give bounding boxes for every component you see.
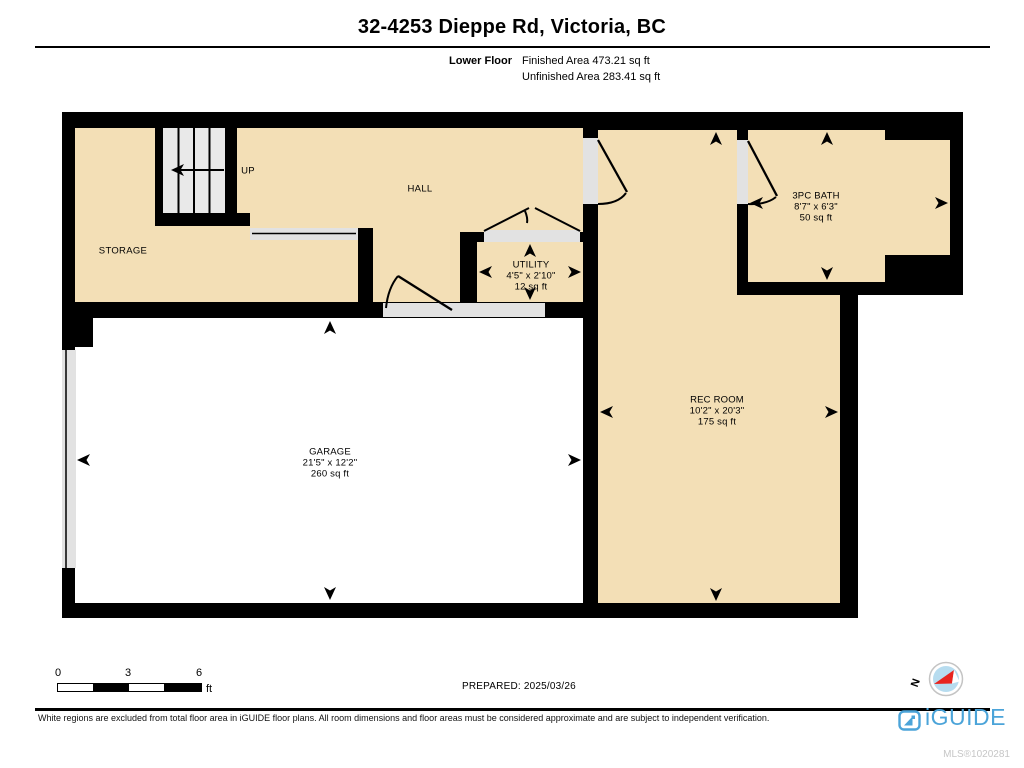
room-dims: 4'5" x 2'10" <box>506 271 555 282</box>
scale-segment <box>129 684 164 691</box>
scale-unit: ft <box>206 683 212 695</box>
footer-disclaimer: White regions are excluded from total fl… <box>38 713 769 723</box>
hall-label: HALL <box>408 184 433 195</box>
scale-bar <box>57 683 202 692</box>
scale-segment <box>93 684 129 691</box>
mls-number: MLS®1020281 <box>943 749 1010 760</box>
room-name: 3PC BATH <box>792 191 839 202</box>
storage-label: STORAGE <box>99 246 147 257</box>
room-area: 260 sq ft <box>303 469 358 480</box>
room-area: 175 sq ft <box>690 417 745 428</box>
stairs-up-label: UP <box>241 166 255 177</box>
compass-icon <box>928 661 964 697</box>
logo-arrow <box>904 717 913 726</box>
floorplan-drawing <box>0 0 1024 768</box>
prepared-date: PREPARED: 2025/03/26 <box>462 681 576 692</box>
room-area: 50 sq ft <box>792 213 839 224</box>
iguide-logo-text: iGUIDE <box>925 704 1006 731</box>
scale-segment <box>58 684 93 691</box>
room-dims: 8'7" x 6'3" <box>792 202 839 213</box>
utility-label: UTILITY 4'5" x 2'10" 12 sq ft <box>506 260 555 293</box>
rec-room-label: REC ROOM 10'2" x 20'3" 175 sq ft <box>690 395 745 428</box>
iguide-logo-icon <box>898 710 922 732</box>
floorplan-page: { "header": { "title": "32-4253 Dieppe R… <box>0 0 1024 768</box>
scale-tick-3: 3 <box>125 667 131 679</box>
scale-tick-0: 0 <box>55 667 61 679</box>
wall-stub <box>62 318 93 347</box>
garage-interior-opening <box>383 303 545 317</box>
room-area: 12 sq ft <box>506 282 555 293</box>
room-dims: 10'2" x 20'3" <box>690 406 745 417</box>
footer-divider <box>35 708 990 711</box>
utility-opening <box>484 230 580 242</box>
bath-door-opening <box>737 140 748 204</box>
garage-label: GARAGE 21'5" x 12'2" 260 sq ft <box>303 447 358 480</box>
logo-dot <box>912 716 916 720</box>
rec-door-opening <box>583 138 598 204</box>
scale-segment <box>164 684 201 691</box>
room-name: UTILITY <box>506 260 555 271</box>
room-name: GARAGE <box>303 447 358 458</box>
garage-door <box>62 350 76 568</box>
room-dims: 21'5" x 12'2" <box>303 458 358 469</box>
room-name: REC ROOM <box>690 395 745 406</box>
bath-label: 3PC BATH 8'7" x 6'3" 50 sq ft <box>792 191 839 224</box>
scale-tick-6: 6 <box>196 667 202 679</box>
